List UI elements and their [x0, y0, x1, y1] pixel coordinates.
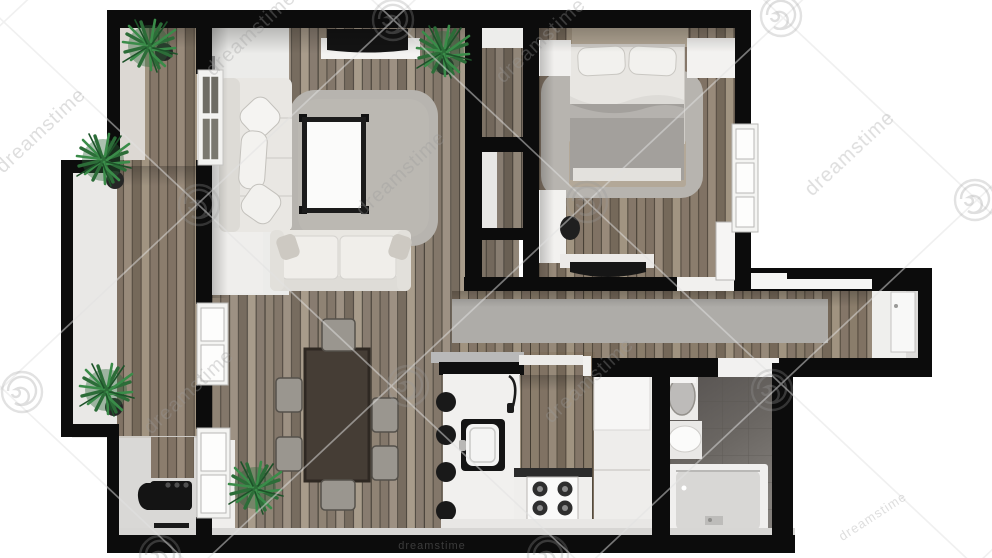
svg-text:dreamstime: dreamstime [398, 540, 465, 552]
